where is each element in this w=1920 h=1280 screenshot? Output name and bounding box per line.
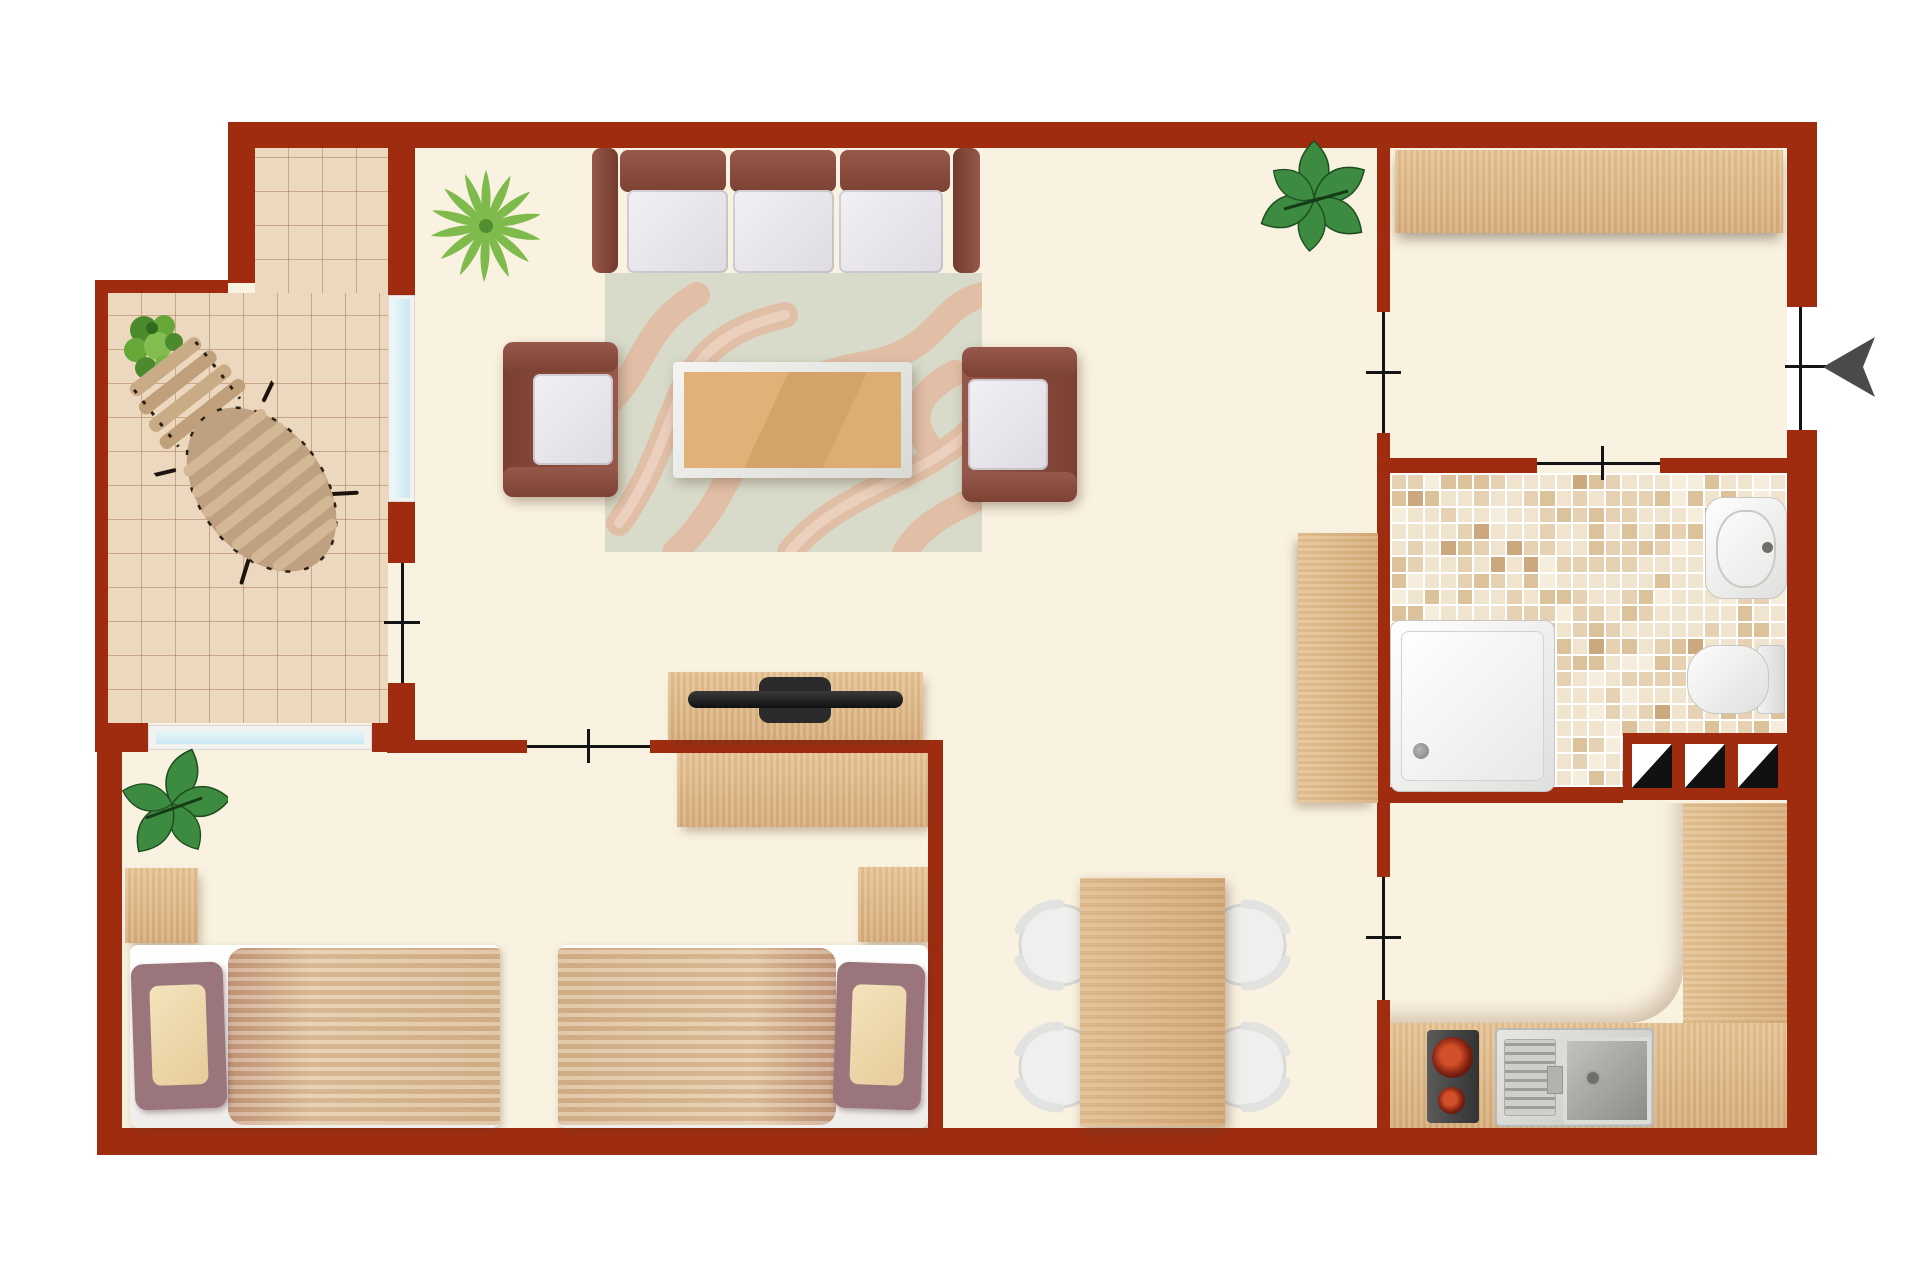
- mosaic-tile: [1639, 672, 1653, 686]
- mosaic-tile: [1589, 590, 1603, 604]
- mosaic-tile: [1639, 590, 1653, 604]
- mosaic-tile: [1573, 738, 1587, 752]
- mosaic-tile: [1639, 491, 1653, 505]
- sofa-cushion-2: [733, 190, 834, 273]
- mosaic-tile: [1557, 721, 1571, 735]
- mosaic-tile: [1524, 606, 1538, 620]
- mosaic-tile: [1408, 524, 1422, 538]
- mosaic-tile: [1507, 508, 1521, 522]
- mosaic-tile: [1524, 557, 1538, 571]
- mosaic-tile: [1458, 491, 1472, 505]
- entry-door-line: [1799, 307, 1802, 430]
- mosaic-tile: [1589, 606, 1603, 620]
- dining-tall-cabinet: [1298, 533, 1378, 803]
- balcony-door-tick: [384, 621, 420, 624]
- mosaic-tile: [1589, 771, 1603, 785]
- mosaic-tile: [1672, 705, 1686, 719]
- mosaic-tile: [1524, 541, 1538, 555]
- mosaic-tile: [1507, 574, 1521, 588]
- balcony-wall-top: [97, 280, 228, 293]
- armchair-right-arm-bottom: [962, 472, 1077, 502]
- mosaic-tile: [1573, 524, 1587, 538]
- bathroom-wall-top-a: [1390, 458, 1537, 473]
- mosaic-tile: [1524, 491, 1538, 505]
- mosaic-tile: [1655, 590, 1669, 604]
- burner-large: [1432, 1037, 1473, 1078]
- mosaic-tile: [1721, 475, 1735, 489]
- mosaic-tile: [1408, 491, 1422, 505]
- mosaic-tile: [1655, 623, 1669, 637]
- mosaic-tile: [1557, 688, 1571, 702]
- mosaic-tile: [1622, 541, 1636, 555]
- mosaic-tile: [1622, 672, 1636, 686]
- mosaic-tile: [1639, 541, 1653, 555]
- mosaic-tile: [1622, 574, 1636, 588]
- mosaic-tile: [1557, 557, 1571, 571]
- mosaic-tile: [1655, 656, 1669, 670]
- bed-right-blanket: [558, 948, 836, 1125]
- mosaic-tile: [1589, 574, 1603, 588]
- mosaic-tile: [1425, 606, 1439, 620]
- mosaic-tile: [1622, 623, 1636, 637]
- mosaic-tile: [1771, 606, 1785, 620]
- mosaic-tile: [1705, 475, 1719, 489]
- mosaic-tile: [1606, 754, 1620, 768]
- mosaic-tile: [1672, 688, 1686, 702]
- mosaic-tile: [1425, 524, 1439, 538]
- mosaic-tile: [1622, 508, 1636, 522]
- cooktop: [1427, 1030, 1479, 1123]
- mosaic-tile: [1557, 491, 1571, 505]
- mosaic-tile: [1491, 557, 1505, 571]
- mosaic-tile: [1392, 475, 1406, 489]
- mosaic-tile: [1408, 606, 1422, 620]
- bed-right-inner-pillow: [849, 984, 906, 1086]
- tv-screen: [688, 691, 903, 708]
- mosaic-tile: [1540, 524, 1554, 538]
- mosaic-tile: [1540, 491, 1554, 505]
- bathroom-door-tick: [1601, 446, 1604, 480]
- mosaic-tile: [1441, 508, 1455, 522]
- mosaic-tile: [1557, 574, 1571, 588]
- mosaic-tile: [1540, 557, 1554, 571]
- mosaic-tile: [1474, 574, 1488, 588]
- mosaic-tile: [1672, 541, 1686, 555]
- mosaic-tile: [1573, 721, 1587, 735]
- mosaic-tile: [1672, 656, 1686, 670]
- mosaic-tile: [1524, 524, 1538, 538]
- mosaic-tile: [1705, 606, 1719, 620]
- toilet: [1687, 645, 1783, 712]
- mosaic-tile: [1491, 491, 1505, 505]
- mosaic-tile: [1606, 574, 1620, 588]
- mosaic-tile: [1622, 590, 1636, 604]
- mosaic-tile: [1507, 606, 1521, 620]
- mosaic-tile: [1655, 491, 1669, 505]
- mosaic-tile: [1408, 590, 1422, 604]
- mosaic-tile: [1672, 672, 1686, 686]
- potted-plant-corner-icon: [1253, 138, 1375, 260]
- mosaic-tile: [1639, 656, 1653, 670]
- balcony-floor-upper: [255, 148, 388, 293]
- bedroom-wall-right: [928, 740, 943, 1128]
- coffee-table-top: [684, 372, 901, 468]
- single-bed-left: [130, 945, 500, 1128]
- mosaic-tile: [1392, 590, 1406, 604]
- mosaic-tile: [1441, 491, 1455, 505]
- sofa-back-1: [620, 150, 726, 192]
- mosaic-tile: [1589, 639, 1603, 653]
- mosaic-tile: [1655, 688, 1669, 702]
- mosaic-tile: [1606, 590, 1620, 604]
- mosaic-tile: [1589, 656, 1603, 670]
- wall-right-lower: [1787, 430, 1817, 1155]
- mosaic-tile: [1573, 491, 1587, 505]
- mosaic-tile: [1639, 606, 1653, 620]
- mosaic-tile: [1425, 491, 1439, 505]
- mosaic-tile: [1441, 574, 1455, 588]
- mosaic-tile: [1425, 557, 1439, 571]
- three-seat-sofa: [592, 148, 980, 273]
- armchair-left: [503, 342, 618, 497]
- mosaic-tile: [1573, 606, 1587, 620]
- bedroom-balcony-window: [148, 725, 372, 750]
- mosaic-tile: [1589, 672, 1603, 686]
- bedroom-desk: [677, 753, 928, 827]
- mosaic-tile: [1540, 590, 1554, 604]
- mosaic-tile: [1655, 475, 1669, 489]
- sink-basin: [1563, 1037, 1651, 1124]
- sofa-armrest-right: [953, 148, 980, 273]
- mosaic-tile: [1474, 491, 1488, 505]
- mosaic-tile: [1540, 541, 1554, 555]
- mosaic-tile: [1557, 541, 1571, 555]
- mosaic-tile: [1655, 639, 1669, 653]
- mosaic-tile: [1754, 623, 1768, 637]
- mosaic-tile: [1392, 508, 1406, 522]
- mosaic-tile: [1392, 574, 1406, 588]
- mosaic-tile: [1507, 524, 1521, 538]
- mosaic-tile: [1688, 623, 1702, 637]
- bedroom-wall-top-b: [650, 740, 943, 753]
- mosaic-tile: [1557, 656, 1571, 670]
- mosaic-tile: [1639, 557, 1653, 571]
- bathroom-door-line: [1537, 462, 1660, 465]
- mosaic-tile: [1589, 754, 1603, 768]
- bed-right-pillow: [832, 962, 925, 1111]
- mosaic-tile: [1573, 705, 1587, 719]
- mosaic-tile: [1425, 590, 1439, 604]
- divider-wall-a: [1377, 140, 1390, 312]
- mosaic-tile: [1589, 721, 1603, 735]
- mosaic-tile: [1655, 672, 1669, 686]
- shower-tray: [1390, 620, 1555, 792]
- mosaic-tile: [1639, 508, 1653, 522]
- kitchen-floor: [1390, 803, 1683, 1023]
- mosaic-tile: [1557, 508, 1571, 522]
- mosaic-tile: [1655, 557, 1669, 571]
- mosaic-tile: [1688, 475, 1702, 489]
- mosaic-tile: [1655, 606, 1669, 620]
- mosaic-tile: [1573, 557, 1587, 571]
- mosaic-tile: [1655, 574, 1669, 588]
- kitchen-door-tick: [1366, 936, 1401, 939]
- mosaic-tile: [1622, 475, 1636, 489]
- tv-sideboard: [668, 672, 923, 740]
- divider-wall-c: [1377, 1000, 1390, 1128]
- balcony-window-wall-a: [388, 148, 415, 295]
- sofa-cushion-1: [627, 190, 728, 273]
- mosaic-tile: [1738, 475, 1752, 489]
- mosaic-tile: [1408, 541, 1422, 555]
- mosaic-tile: [1589, 508, 1603, 522]
- mosaic-tile: [1491, 541, 1505, 555]
- mosaic-tile: [1705, 623, 1719, 637]
- burner-small: [1438, 1087, 1465, 1114]
- mosaic-tile: [1622, 705, 1636, 719]
- mosaic-tile: [1557, 606, 1571, 620]
- mosaic-tile: [1688, 508, 1702, 522]
- mosaic-tile: [1392, 541, 1406, 555]
- mosaic-tile: [1672, 590, 1686, 604]
- mosaic-tile: [1738, 606, 1752, 620]
- mosaic-tile: [1392, 557, 1406, 571]
- mosaic-tile: [1622, 491, 1636, 505]
- coffee-table: [673, 362, 912, 478]
- mosaic-tile: [1688, 541, 1702, 555]
- mosaic-tile: [1573, 475, 1587, 489]
- mosaic-tile: [1771, 623, 1785, 637]
- mosaic-tile: [1507, 557, 1521, 571]
- mosaic-tile: [1557, 705, 1571, 719]
- mosaic-tile: [1606, 656, 1620, 670]
- balcony-window-wall-b: [388, 502, 415, 563]
- potted-plant-bedroom-icon: [116, 748, 228, 860]
- dining-table: [1080, 878, 1225, 1127]
- toilet-bowl: [1687, 645, 1769, 714]
- mosaic-tile: [1672, 623, 1686, 637]
- mosaic-tile: [1622, 688, 1636, 702]
- mosaic-tile: [1606, 524, 1620, 538]
- mosaic-tile: [1491, 508, 1505, 522]
- wall-right-upper: [1787, 122, 1817, 307]
- armchair-left-seat: [533, 374, 613, 465]
- mosaic-tile: [1573, 639, 1587, 653]
- mosaic-tile: [1474, 475, 1488, 489]
- mosaic-tile: [1589, 491, 1603, 505]
- mosaic-tile: [1557, 754, 1571, 768]
- mosaic-tile: [1441, 606, 1455, 620]
- mosaic-tile: [1771, 475, 1785, 489]
- mosaic-tile: [1441, 541, 1455, 555]
- mosaic-tile: [1573, 623, 1587, 637]
- armchair-right-seat: [968, 379, 1048, 470]
- mosaic-tile: [1458, 508, 1472, 522]
- mosaic-tile: [1622, 639, 1636, 653]
- mosaic-tile: [1491, 524, 1505, 538]
- mosaic-tile: [1606, 541, 1620, 555]
- mosaic-tile: [1557, 623, 1571, 637]
- mosaic-tile: [1524, 508, 1538, 522]
- mosaic-tile: [1738, 623, 1752, 637]
- mosaic-tile: [1441, 590, 1455, 604]
- mosaic-tile: [1672, 524, 1686, 538]
- mosaic-tile: [1589, 541, 1603, 555]
- mosaic-tile: [1458, 590, 1472, 604]
- mosaic-tile: [1458, 524, 1472, 538]
- mosaic-tile: [1573, 590, 1587, 604]
- mosaic-tile: [1392, 524, 1406, 538]
- mosaic-tile: [1606, 557, 1620, 571]
- mosaic-tile: [1441, 475, 1455, 489]
- single-bed-right: [558, 945, 928, 1128]
- mosaic-tile: [1458, 557, 1472, 571]
- mosaic-tile: [1672, 639, 1686, 653]
- mosaic-tile: [1606, 721, 1620, 735]
- mosaic-tile: [1474, 557, 1488, 571]
- mosaic-tile: [1589, 705, 1603, 719]
- mosaic-tile: [1491, 475, 1505, 489]
- mosaic-tile: [1754, 475, 1768, 489]
- entry-arrow-icon: [1823, 337, 1875, 397]
- mosaic-tile: [1589, 524, 1603, 538]
- mosaic-tile: [1589, 688, 1603, 702]
- mosaic-tile: [1425, 475, 1439, 489]
- mosaic-tile: [1540, 606, 1554, 620]
- mosaic-tile: [1639, 623, 1653, 637]
- mosaic-tile: [1589, 557, 1603, 571]
- mosaic-tile: [1655, 541, 1669, 555]
- apartment-floor-plan: [0, 0, 1920, 1280]
- mosaic-tile: [1573, 688, 1587, 702]
- mosaic-tile: [1688, 606, 1702, 620]
- mosaic-tile: [1441, 557, 1455, 571]
- mosaic-tile: [1474, 606, 1488, 620]
- mosaic-tile: [1573, 672, 1587, 686]
- mosaic-tile: [1688, 491, 1702, 505]
- mosaic-tile: [1425, 541, 1439, 555]
- mosaic-tile: [1524, 590, 1538, 604]
- mosaic-tile: [1606, 491, 1620, 505]
- mosaic-tile: [1655, 705, 1669, 719]
- mosaic-tile: [1606, 639, 1620, 653]
- shaft-cell-icon: [1685, 744, 1725, 788]
- mosaic-tile: [1606, 475, 1620, 489]
- kitchen-sink: [1495, 1028, 1654, 1127]
- service-shaft: [1623, 733, 1787, 800]
- mosaic-tile: [1557, 639, 1571, 653]
- mosaic-tile: [1441, 524, 1455, 538]
- balcony-bedroom-stub-right: [372, 723, 415, 752]
- armchair-right: [962, 347, 1077, 502]
- mosaic-tile: [1639, 688, 1653, 702]
- mosaic-tile: [1573, 754, 1587, 768]
- mosaic-tile: [1606, 623, 1620, 637]
- mosaic-tile: [1507, 541, 1521, 555]
- mosaic-tile: [1557, 771, 1571, 785]
- mosaic-tile: [1721, 606, 1735, 620]
- mosaic-tile: [1721, 623, 1735, 637]
- mosaic-tile: [1606, 771, 1620, 785]
- mosaic-tile: [1474, 508, 1488, 522]
- mosaic-tile: [1474, 541, 1488, 555]
- mosaic-tile: [1606, 606, 1620, 620]
- mosaic-tile: [1507, 491, 1521, 505]
- sofa-cushion-3: [839, 190, 943, 273]
- wall-bottom: [97, 1128, 1817, 1155]
- wall-top: [228, 122, 1817, 148]
- mosaic-tile: [1672, 574, 1686, 588]
- bed-left-inner-pillow: [149, 984, 208, 1086]
- balcony-wall-left: [95, 280, 108, 725]
- mosaic-tile: [1507, 475, 1521, 489]
- bed-left-pillow: [130, 961, 227, 1110]
- mosaic-tile: [1688, 557, 1702, 571]
- balcony-living-window: [388, 295, 415, 502]
- mosaic-tile: [1688, 524, 1702, 538]
- bathroom-wall-top-b: [1660, 458, 1787, 473]
- armchair-left-arm-top: [503, 342, 618, 372]
- mosaic-tile: [1491, 574, 1505, 588]
- sofa-armrest-left: [592, 148, 618, 273]
- mosaic-tile: [1392, 606, 1406, 620]
- mosaic-tile: [1408, 574, 1422, 588]
- mosaic-tile: [1688, 574, 1702, 588]
- mosaic-tile: [1606, 688, 1620, 702]
- bedroom-door-tick: [587, 729, 590, 763]
- nightstand-left: [125, 868, 198, 943]
- sink-handle: [1547, 1066, 1563, 1094]
- divider-wall-b: [1377, 433, 1390, 877]
- potted-palm-icon: [428, 168, 544, 284]
- mosaic-tile: [1557, 672, 1571, 686]
- mosaic-tile: [1392, 491, 1406, 505]
- nightstand-right: [858, 867, 928, 942]
- mosaic-tile: [1754, 606, 1768, 620]
- mosaic-tile: [1557, 590, 1571, 604]
- mosaic-tile: [1408, 508, 1422, 522]
- mosaic-tile: [1540, 508, 1554, 522]
- mosaic-tile: [1573, 771, 1587, 785]
- wall-topleft-leg: [228, 122, 255, 283]
- mosaic-tile: [1507, 590, 1521, 604]
- armchair-right-arm-top: [962, 347, 1077, 377]
- mosaic-tile: [1606, 672, 1620, 686]
- mosaic-tile: [1458, 574, 1472, 588]
- shaft-cell-icon: [1738, 744, 1778, 788]
- mosaic-tile: [1425, 508, 1439, 522]
- mosaic-tile: [1557, 524, 1571, 538]
- mosaic-tile: [1524, 475, 1538, 489]
- mosaic-tile: [1672, 606, 1686, 620]
- shaft-cell-icon: [1632, 744, 1672, 788]
- mosaic-tile: [1672, 557, 1686, 571]
- mosaic-tile: [1458, 541, 1472, 555]
- mosaic-tile: [1622, 656, 1636, 670]
- mosaic-tile: [1655, 524, 1669, 538]
- mosaic-tile: [1639, 574, 1653, 588]
- washbasin: [1705, 497, 1787, 599]
- mosaic-tile: [1425, 574, 1439, 588]
- mosaic-tile: [1540, 574, 1554, 588]
- mosaic-tile: [1688, 590, 1702, 604]
- hallway-living-door-tick: [1366, 371, 1401, 374]
- sofa-back-2: [730, 150, 836, 192]
- mosaic-tile: [1672, 491, 1686, 505]
- mosaic-tile: [1655, 508, 1669, 522]
- mosaic-tile: [1573, 508, 1587, 522]
- mosaic-tile: [1606, 738, 1620, 752]
